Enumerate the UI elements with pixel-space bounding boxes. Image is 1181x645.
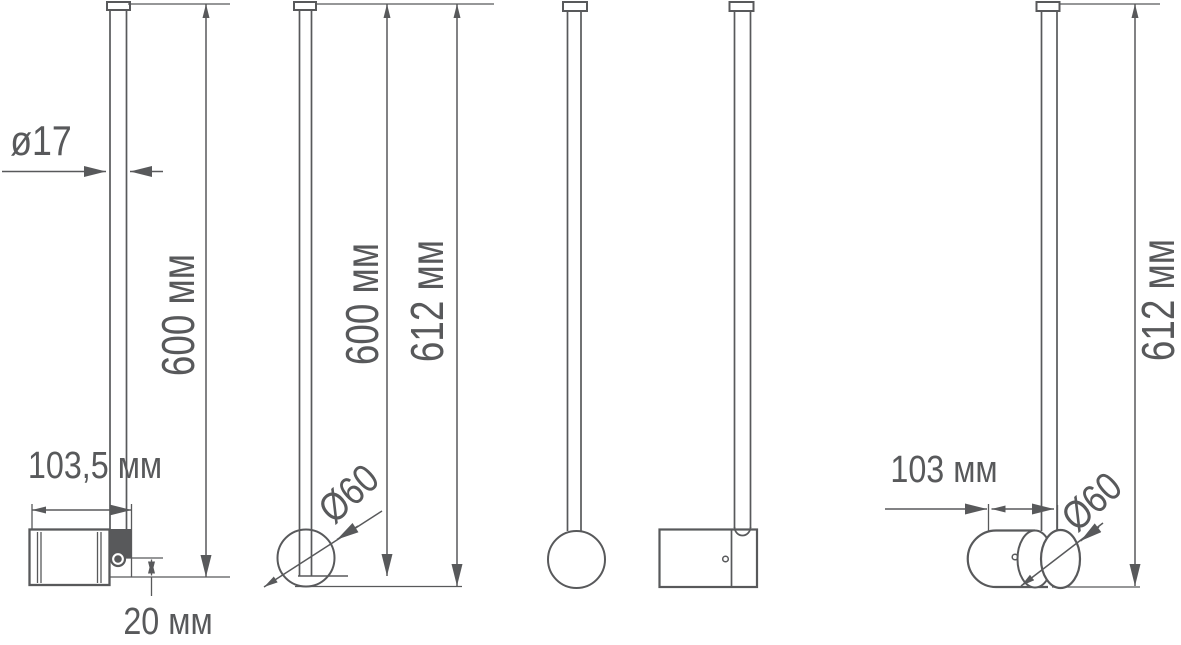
- v2-length-label: 600 мм: [339, 243, 385, 365]
- rod-cap: [107, 2, 130, 10]
- rod-cap: [1037, 2, 1060, 11]
- rod-cap: [730, 2, 754, 11]
- v1-offset-label: 20 мм: [123, 603, 212, 641]
- luminaire-dimension-drawing: ø17 600 мм 103,5 мм 20 мм 600 мм 612 мм …: [0, 0, 1181, 645]
- rod-cap: [563, 2, 587, 11]
- screw-center: [114, 555, 122, 563]
- body-circle: [278, 530, 335, 587]
- v2-total-length-label: 612 мм: [404, 240, 450, 362]
- view-front-circle: [548, 2, 605, 588]
- v1-body-depth-label: 103,5 мм: [28, 447, 162, 485]
- body-circle: [548, 531, 605, 588]
- body-front-face: [1041, 530, 1080, 588]
- rod-diameter-label: ø17: [10, 120, 72, 162]
- v1-length-label: 600 мм: [155, 254, 201, 376]
- view-front-body: [660, 2, 758, 587]
- rod-cap: [294, 2, 316, 10]
- v5-total-length-label: 612 мм: [1135, 239, 1181, 361]
- v5-body-depth-label: 103 мм: [890, 451, 997, 489]
- lamp-body: [660, 530, 758, 588]
